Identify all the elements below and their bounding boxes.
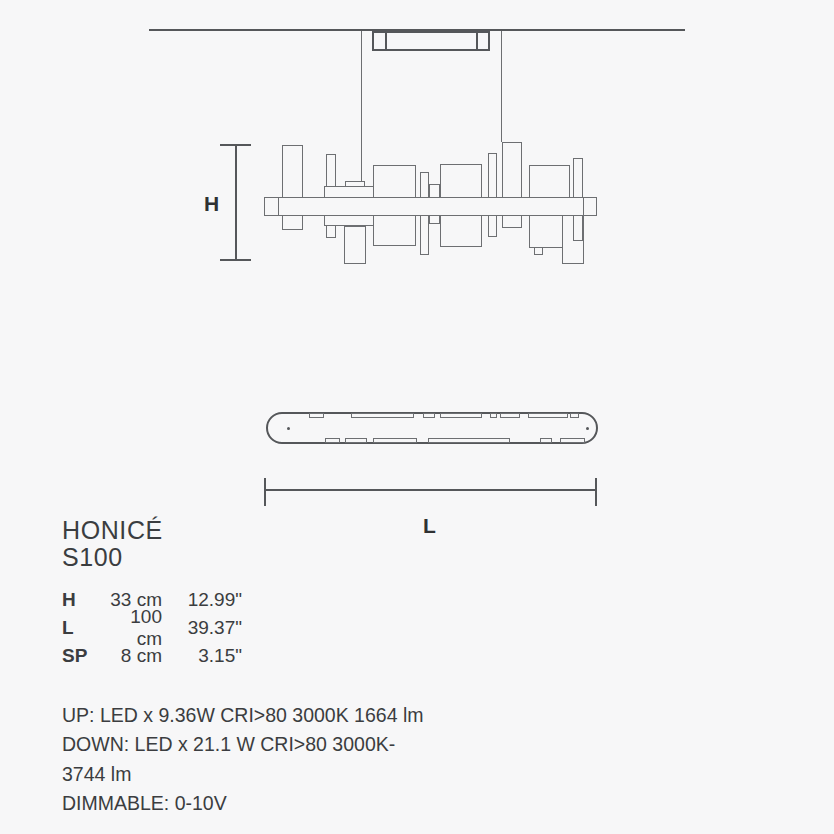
plan-tab-bottom <box>560 438 585 443</box>
ceiling-canopy <box>372 31 490 51</box>
length-dimension-label: L <box>423 514 436 538</box>
panel-far-left-tall <box>282 145 303 230</box>
dimension-label: SP <box>62 645 100 667</box>
light-bar <box>264 197 597 216</box>
screw-hole-right <box>586 427 589 430</box>
plan-tab-bottom <box>325 438 340 443</box>
light-bar-cap-right <box>583 198 584 215</box>
suspension-cable-left <box>361 31 362 181</box>
dimension-imperial: 12.99" <box>162 589 242 611</box>
canopy-divider-left <box>385 32 387 50</box>
product-name: HONICÉ <box>62 517 163 544</box>
spec-line-up: UP: LED x 9.36W CRI>80 3000K 1664 lm <box>62 701 423 730</box>
plan-tab-bottom <box>540 438 552 443</box>
height-dimension-label: H <box>204 192 219 216</box>
canopy-divider-right <box>476 32 478 50</box>
length-dimension-tick-right <box>595 478 597 506</box>
panel-right-slat-inner <box>488 153 497 237</box>
plan-tab-top <box>528 413 568 418</box>
dimension-row-l: L 100 cm 39.37" <box>62 614 242 642</box>
product-title: HONICÉ S100 <box>62 517 163 571</box>
panel-left-lower <box>344 226 366 264</box>
panel-right-large-tab <box>534 247 543 255</box>
dimension-label: H <box>62 589 100 611</box>
length-dimension-line <box>265 489 597 491</box>
spec-line-dimmable: DIMMABLE: 0-10V <box>62 789 423 818</box>
length-dimension-tick-left <box>264 478 266 506</box>
plan-tab-bottom <box>428 438 510 443</box>
dimension-imperial: 3.15" <box>162 645 242 667</box>
plan-tab-top <box>440 413 482 418</box>
plan-tab-top <box>309 413 324 418</box>
product-model: S100 <box>62 544 163 571</box>
dimension-metric: 8 cm <box>100 645 162 667</box>
plan-tab-bottom <box>373 438 417 443</box>
height-dimension-line <box>235 145 237 260</box>
plan-tab-top <box>500 413 520 418</box>
dimension-metric: 100 cm <box>100 606 162 650</box>
plan-tab-top <box>423 413 435 418</box>
dimension-table: H 33 cm 12.99" L 100 cm 39.37" SP 8 cm 3… <box>62 586 242 670</box>
height-dimension-tick-bottom <box>220 259 251 261</box>
dimension-imperial: 39.37" <box>162 617 242 639</box>
plan-tab-bottom <box>345 438 367 443</box>
plan-tab-top <box>351 413 414 418</box>
light-bar-cap-left <box>278 198 279 215</box>
dimension-row-sp: SP 8 cm 3.15" <box>62 642 242 670</box>
spec-sheet-page: H L HONICÉ S100 <box>0 0 834 834</box>
technical-specs: UP: LED x 9.36W CRI>80 3000K 1664 lm DOW… <box>62 701 423 819</box>
spec-line-down-lumens: 3744 lm <box>62 760 423 789</box>
screw-hole-left <box>287 427 290 430</box>
plan-tab-top <box>570 413 579 418</box>
spec-line-down: DOWN: LED x 21.1 W CRI>80 3000K- <box>62 730 423 759</box>
suspension-cable-right <box>501 31 502 142</box>
plan-tab-top <box>490 413 497 418</box>
dimension-label: L <box>62 617 100 639</box>
height-dimension-tick-top <box>220 144 251 146</box>
